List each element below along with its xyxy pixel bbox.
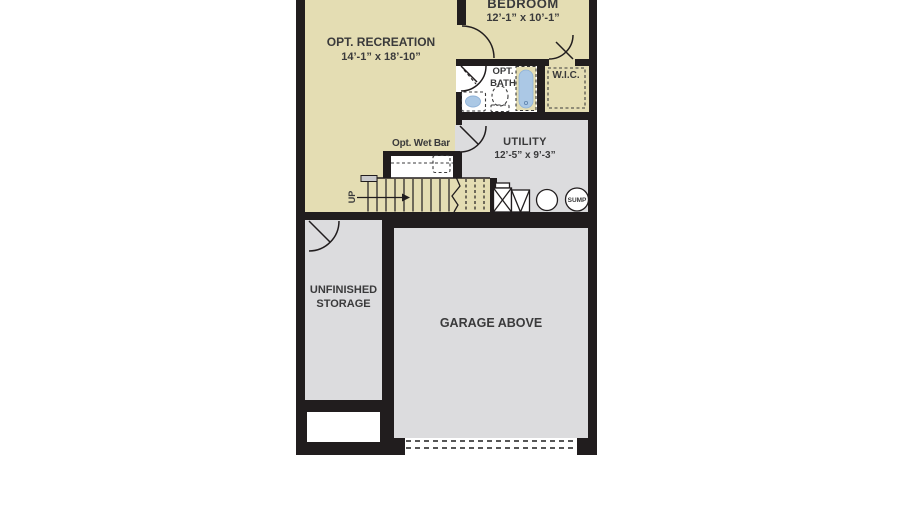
utility-dims: 12’-5” x 9’-3” xyxy=(462,150,588,161)
room-label-storage: UNFINISHED STORAGE xyxy=(305,283,382,311)
recreation-name: OPT. RECREATION xyxy=(305,35,457,49)
room-label-wic: W.I.C. xyxy=(545,70,587,81)
wall-stairs-utility xyxy=(490,178,497,212)
stairs-floor xyxy=(362,178,490,212)
stairs-up-label: UP xyxy=(347,185,357,209)
room-label-garage: GARAGE ABOVE xyxy=(394,315,588,331)
wic-door-opening xyxy=(549,59,575,66)
room-label-bedroom: BEDROOM 12’-1” x 10’-1” xyxy=(457,0,589,24)
utility-name: UTILITY xyxy=(462,136,588,148)
room-label-bath: OPT. BATH xyxy=(486,66,520,90)
recreation-dims: 14’-1” x 18’-10” xyxy=(305,51,457,63)
bedroom-name: BEDROOM xyxy=(457,0,589,11)
storage-window-well xyxy=(307,412,380,442)
wet-bar-counter xyxy=(391,156,453,178)
garage-door-opening xyxy=(405,438,577,455)
room-garage-floor xyxy=(394,228,588,438)
room-label-recreation: OPT. RECREATION 14’-1” x 18’-10” xyxy=(305,35,457,63)
room-label-utility: UTILITY 12’-5” x 9’-3” xyxy=(462,136,588,161)
floor-plan-canvas: BEDROOM 12’-1” x 10’-1” OPT. RECREATION … xyxy=(0,0,900,529)
bath-door-opening xyxy=(456,66,462,92)
bedroom-dims: 12’-1” x 10’-1” xyxy=(457,12,589,24)
sump-label: SUMP xyxy=(565,197,589,204)
room-label-wet-bar: Opt. Wet Bar xyxy=(383,138,459,149)
